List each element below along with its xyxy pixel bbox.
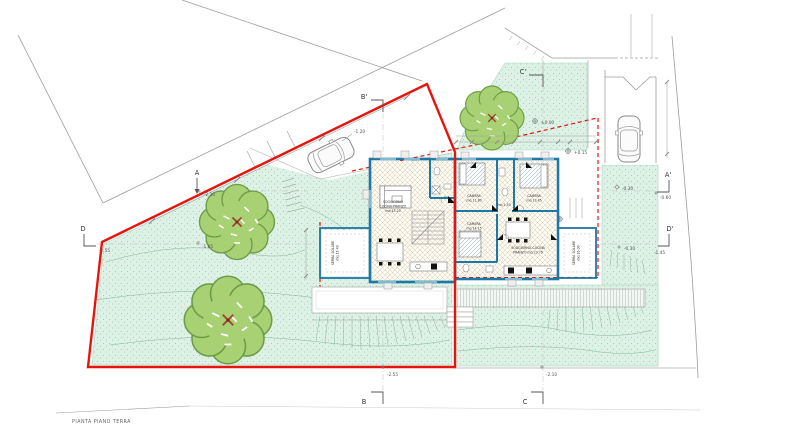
site-plan-drawing: SOGGIORNO CUCINA-PRANZO mq 43.20 SERRA S… — [0, 0, 800, 441]
elevation-d-left: -2.55 — [99, 248, 110, 254]
plan-canvas: SOGGIORNO CUCINA-PRANZO mq 43.20 SERRA S… — [0, 0, 800, 441]
elevation-road: -2.10 — [204, 192, 215, 198]
sink — [416, 264, 421, 269]
elevation-tree: -1.65 — [202, 244, 213, 250]
car — [616, 116, 643, 162]
room-label-dx-living-area: PRANZO mq 23.70 — [513, 251, 543, 255]
stove — [431, 264, 437, 270]
oven — [526, 268, 532, 274]
room-label-dx-hall-area: mq 2.50 — [497, 203, 510, 207]
pillow — [460, 232, 480, 238]
section-letter-a: A — [195, 169, 200, 177]
section-letter-c: C — [523, 398, 528, 406]
room-label-sx-living-area: mq 43.20 — [385, 209, 400, 213]
pillow — [541, 165, 547, 187]
tree — [460, 86, 524, 150]
section-letter-c1: C' — [520, 68, 527, 76]
room-label-dx-serra-area: mq 16.00 — [577, 245, 581, 260]
elevation-a1-side: -0.60 — [660, 195, 671, 201]
sink — [547, 268, 552, 273]
room-label-dx-cam3: CAMERA — [467, 222, 481, 226]
room-label-dx-cam2: CAMERA — [527, 194, 541, 198]
section-letter-b1: B' — [361, 93, 368, 101]
room-label-sx-living: SOGGIORNO — [383, 200, 404, 204]
deck-steps — [447, 307, 473, 327]
room-label-dx-cam3-area: mq 14.15 — [466, 227, 481, 231]
section-letter-d: D — [80, 225, 85, 233]
room-label-dx-cam1: CAMERA — [467, 194, 481, 198]
elevation-serra-side: -0.30 — [624, 246, 635, 252]
elevation-driveway: -0.30 — [622, 186, 633, 192]
elevation-d1-side: -1.45 — [654, 250, 665, 256]
elevation-ramp: -1.20 — [354, 129, 365, 135]
tree — [184, 276, 272, 364]
elevation-courtyard: ±0.00 — [541, 120, 554, 126]
drawing-title: PIANTA PIANO TERRA — [72, 419, 131, 425]
elevation-entry: +0.15 — [574, 150, 587, 156]
floor-serra-left — [322, 230, 368, 276]
room-label-dx-cam1-area: mq 11.80 — [466, 199, 481, 203]
room-label-sx-living-2: CUCINA-PRANZO — [380, 205, 407, 209]
section-letter-a1: A' — [665, 171, 672, 179]
room-label-sx-serra-area: mq 15.40 — [336, 245, 340, 260]
deck-right — [455, 289, 645, 307]
dining-table — [377, 243, 403, 261]
elevation-bottom-center: -2.10 — [546, 372, 557, 378]
section-letter-b: B — [362, 398, 367, 406]
room-label-sx-serra: SERRA SOLARE — [331, 241, 335, 265]
stove — [508, 268, 514, 274]
pillow — [460, 164, 466, 184]
room-label-dx-cam2-area: mq 13.45 — [526, 199, 541, 203]
dining-table — [506, 222, 530, 238]
room-label-dx-serra: SERRA SOLARE — [572, 241, 576, 265]
elevation-bottom-left: -2.55 — [387, 372, 398, 378]
section-letter-d1: D' — [667, 225, 674, 233]
room-label-dx-living: SOGGIORNO-CUCINA — [511, 246, 545, 250]
